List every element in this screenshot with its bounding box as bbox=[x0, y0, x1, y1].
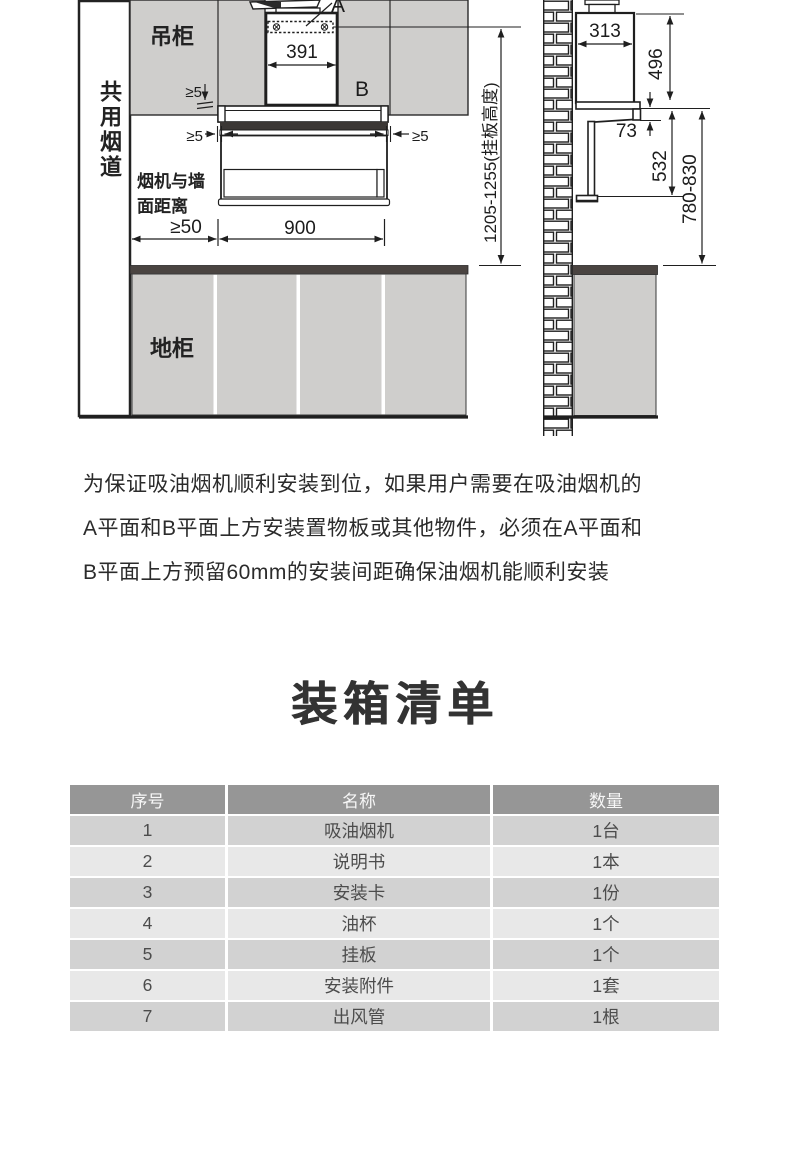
side-view: 313 496 bbox=[543, 0, 716, 436]
svg-text:≥50: ≥50 bbox=[170, 217, 202, 238]
col-header-name: 名称 bbox=[228, 785, 490, 814]
svg-text:≥5: ≥5 bbox=[412, 128, 429, 145]
table-cell: 3 bbox=[70, 878, 225, 907]
col-header-qty: 数量 bbox=[493, 785, 719, 814]
table-cell: 1个 bbox=[493, 940, 719, 969]
table-cell: 1台 bbox=[493, 816, 719, 845]
wall-cabinet-label: 吊柜 bbox=[150, 19, 194, 51]
shared-flue-column bbox=[79, 1, 130, 416]
wall-distance-label: 烟机与墙面距离 bbox=[137, 170, 215, 219]
table-cell: 挂板 bbox=[228, 940, 490, 969]
plane-b-label: B bbox=[355, 78, 369, 101]
installation-note: 为保证吸油烟机顺利安装到位，如果用户需要在吸油烟机的 A平面和B平面上方安装置物… bbox=[83, 463, 743, 595]
base-cabinet-label: 地柜 bbox=[150, 331, 194, 363]
table-cell: 安装卡 bbox=[228, 878, 490, 907]
table-cell: 2 bbox=[70, 847, 225, 876]
note-line: B平面上方预留60mm的安装间距确保油烟机能顺利安装 bbox=[83, 551, 743, 595]
table-cell: 1根 bbox=[493, 1002, 719, 1031]
note-line: 为保证吸油烟机顺利安装到位，如果用户需要在吸油烟机的 bbox=[83, 463, 743, 507]
dim-496: 496 bbox=[636, 14, 684, 100]
hood-top-panel bbox=[218, 106, 388, 136]
note-line: A平面和B平面上方安装置物板或其他物件，必须在A平面和 bbox=[83, 507, 743, 551]
table-cell: 吸油烟机 bbox=[228, 816, 490, 845]
side-chimney bbox=[576, 0, 634, 103]
svg-text:780-830: 780-830 bbox=[680, 154, 701, 224]
packing-list-title: 装箱清单 bbox=[0, 668, 790, 734]
svg-text:1205-1255(挂板高度): 1205-1255(挂板高度) bbox=[481, 82, 500, 243]
table-cell: 1份 bbox=[493, 878, 719, 907]
dim-780-830: 780-830 bbox=[663, 111, 716, 266]
brick-wall bbox=[543, 0, 573, 436]
dim-hang-height: 1205-1255(挂板高度) bbox=[470, 27, 521, 266]
table-cell: 说明书 bbox=[228, 847, 490, 876]
dim-bottom: ≥50 900 bbox=[132, 217, 385, 246]
screw-icon bbox=[321, 24, 327, 30]
table-cell: 4 bbox=[70, 909, 225, 938]
svg-text:532: 532 bbox=[650, 150, 671, 182]
svg-text:73: 73 bbox=[616, 121, 637, 142]
dim-532: 532 bbox=[598, 111, 683, 197]
shared-flue-label: 共用烟道 bbox=[93, 80, 125, 180]
installation-diagram: A B 391 bbox=[0, 0, 790, 440]
packing-list-table: 序号 名称 数量 1 吸油烟机 1台 2 说明书 1本 3 安装卡 1份 4 油… bbox=[70, 785, 719, 1031]
table-cell: 1本 bbox=[493, 847, 719, 876]
manual-page: A B 391 bbox=[0, 0, 790, 1165]
screw-icon bbox=[273, 24, 279, 30]
svg-text:391: 391 bbox=[286, 42, 318, 63]
side-base-cabinet bbox=[573, 266, 658, 416]
svg-text:900: 900 bbox=[284, 218, 316, 239]
table-cell: 1 bbox=[70, 816, 225, 845]
svg-text:313: 313 bbox=[589, 21, 621, 42]
svg-text:≥5: ≥5 bbox=[186, 128, 203, 145]
table-cell: 1个 bbox=[493, 909, 719, 938]
table-cell: 安装附件 bbox=[228, 971, 490, 1000]
table-cell: 1套 bbox=[493, 971, 719, 1000]
table-cell: 7 bbox=[70, 1002, 225, 1031]
table-cell: 出风管 bbox=[228, 1002, 490, 1031]
plane-a-label: A bbox=[331, 0, 345, 17]
side-hood-profile bbox=[576, 102, 641, 202]
svg-text:496: 496 bbox=[646, 48, 667, 80]
table-cell: 油杯 bbox=[228, 909, 490, 938]
table-cell: 6 bbox=[70, 971, 225, 1000]
svg-text:≥5: ≥5 bbox=[185, 84, 202, 101]
table-cell: 5 bbox=[70, 940, 225, 969]
col-header-no: 序号 bbox=[70, 785, 225, 814]
hood-body bbox=[219, 136, 390, 206]
